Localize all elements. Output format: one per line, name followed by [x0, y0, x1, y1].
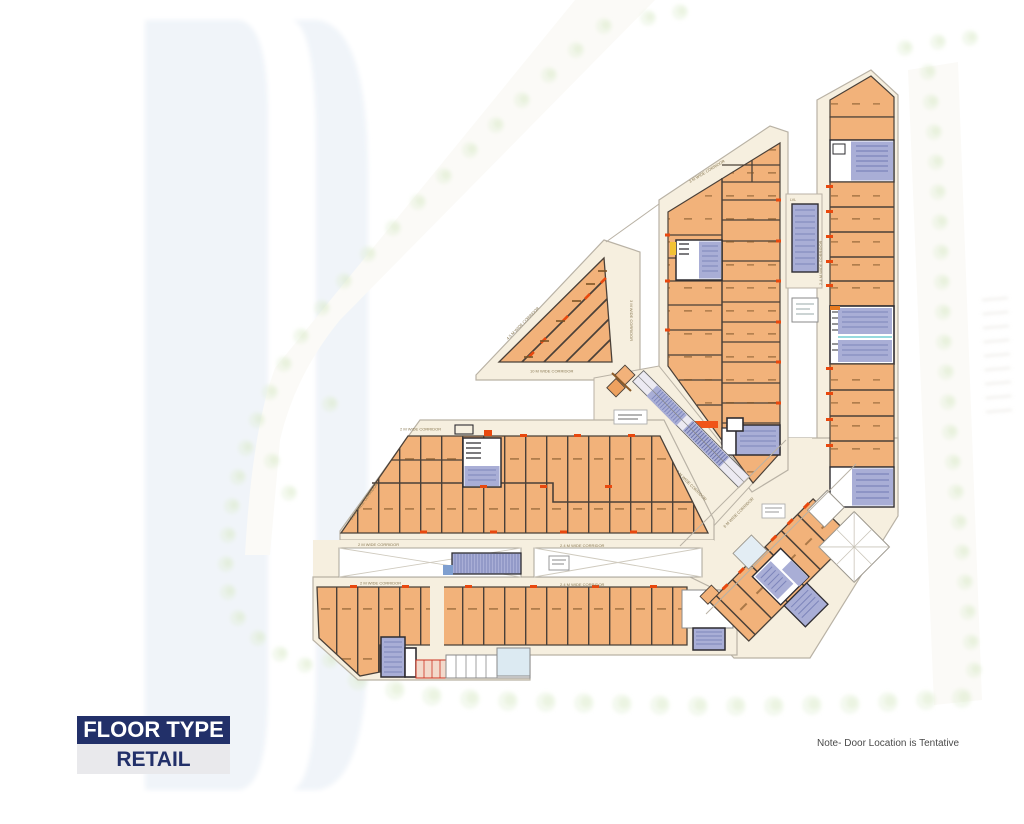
- svg-text:2.4 M WIDE CORRIDOR: 2.4 M WIDE CORRIDOR: [560, 543, 605, 548]
- svg-text:2.4 M WIDE CORRIDOR: 2.4 M WIDE CORRIDOR: [560, 582, 605, 587]
- svg-text:2 M WIDE CORRIDOR: 2 M WIDE CORRIDOR: [358, 542, 399, 547]
- svg-text:10 M WIDE CORRIDOR: 10 M WIDE CORRIDOR: [530, 369, 573, 374]
- svg-text:2.4 M WIDE CORRIDOR: 2.4 M WIDE CORRIDOR: [818, 240, 823, 285]
- svg-text:3 M WIDE CORRIDOR: 3 M WIDE CORRIDOR: [629, 300, 634, 341]
- svg-text:FLOOR TYPE: FLOOR TYPE: [83, 717, 224, 742]
- svg-text:2 M WIDE CORRIDOR: 2 M WIDE CORRIDOR: [400, 427, 441, 432]
- svg-text:2 M WIDE CORRIDOR: 2 M WIDE CORRIDOR: [360, 581, 401, 586]
- svg-text:LVL: LVL: [790, 198, 796, 202]
- svg-text:RETAIL: RETAIL: [116, 748, 190, 771]
- svg-text:Note- Door Location is Tentati: Note- Door Location is Tentative: [817, 738, 960, 749]
